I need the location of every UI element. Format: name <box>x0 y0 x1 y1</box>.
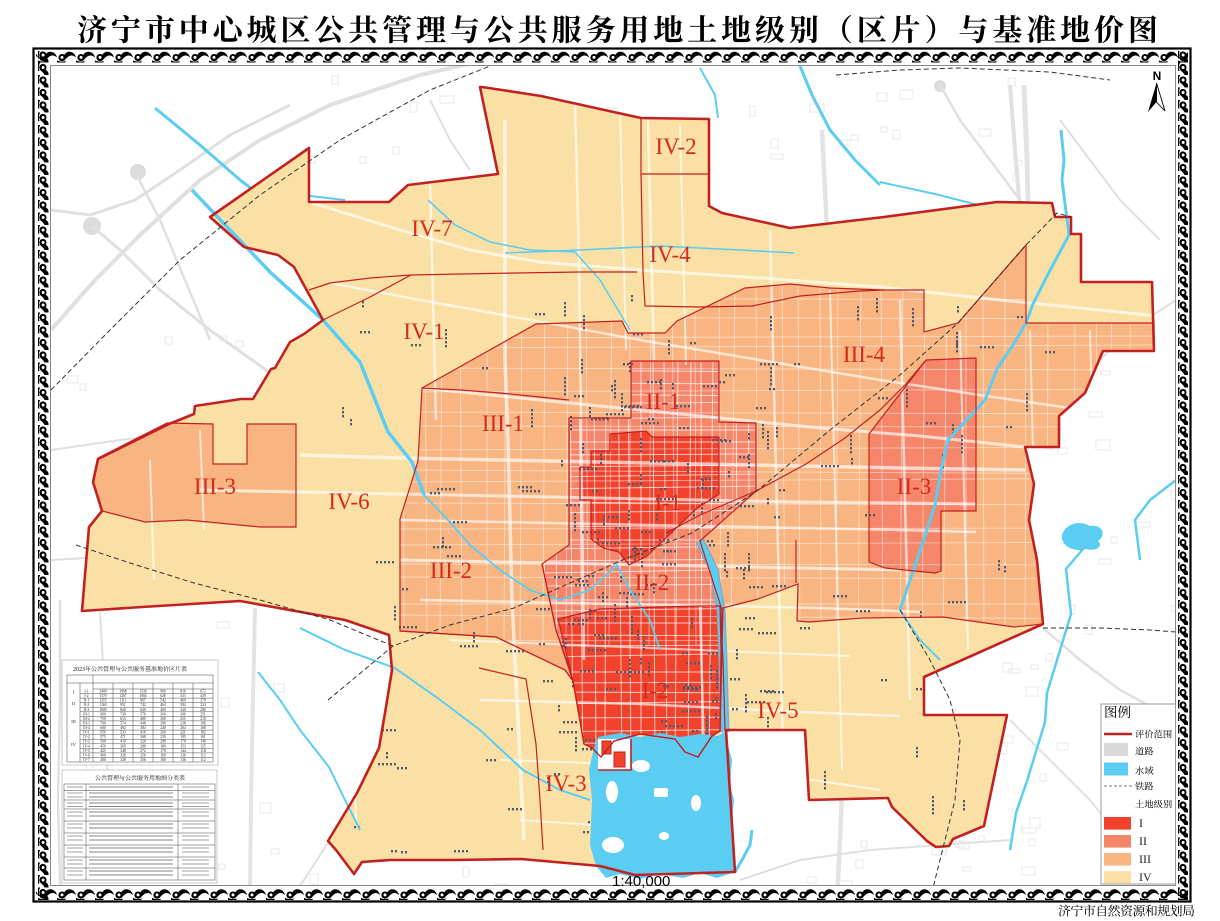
svg-text:328: 328 <box>120 758 126 762</box>
svg-text:820: 820 <box>120 708 126 712</box>
svg-text:161: 161 <box>200 735 206 739</box>
svg-text:400: 400 <box>160 708 166 712</box>
svg-text:340: 340 <box>180 708 186 712</box>
svg-text:251: 251 <box>200 712 206 716</box>
svg-text:300: 300 <box>160 717 166 721</box>
svg-text:324: 324 <box>200 703 206 707</box>
svg-text:615: 615 <box>120 717 126 721</box>
svg-text:464: 464 <box>160 703 166 707</box>
svg-text:1004: 1004 <box>139 694 146 698</box>
svg-text:394: 394 <box>180 703 186 707</box>
svg-text:672: 672 <box>200 690 206 694</box>
svg-text:700: 700 <box>100 722 106 726</box>
svg-text:144: 144 <box>180 749 186 753</box>
svg-text:IV: IV <box>1139 870 1152 884</box>
svg-text:112: 112 <box>200 758 205 762</box>
svg-text:256: 256 <box>140 753 146 757</box>
svg-text:153: 153 <box>180 744 186 748</box>
svg-text:125: 125 <box>200 744 206 748</box>
svg-text:1570: 1570 <box>99 694 106 698</box>
svg-text:416: 416 <box>140 731 146 735</box>
svg-text:140: 140 <box>200 740 206 744</box>
svg-text:1000: 1000 <box>99 708 106 712</box>
svg-text:379: 379 <box>200 699 206 703</box>
svg-text:N: N <box>1153 69 1162 83</box>
svg-text:439: 439 <box>200 694 206 698</box>
svg-text:240: 240 <box>160 726 166 730</box>
svg-text:272: 272 <box>140 749 146 753</box>
svg-text:1:40,000: 1:40,000 <box>612 873 670 890</box>
svg-text:816: 816 <box>180 690 186 694</box>
svg-text:2400: 2400 <box>99 690 106 694</box>
svg-text:1968: 1968 <box>119 690 126 694</box>
svg-text:1160: 1160 <box>99 703 106 707</box>
svg-text:160: 160 <box>160 753 166 757</box>
svg-text:196: 196 <box>200 722 206 726</box>
svg-text:168: 168 <box>200 726 206 730</box>
svg-text:160: 160 <box>160 758 166 762</box>
svg-text:238: 238 <box>180 722 186 726</box>
svg-text:136: 136 <box>180 758 186 762</box>
svg-text:576: 576 <box>140 712 146 716</box>
svg-text:384: 384 <box>140 726 146 730</box>
svg-text:IV-7: IV-7 <box>411 216 452 241</box>
svg-text:750: 750 <box>100 717 106 721</box>
svg-text:221: 221 <box>180 731 186 735</box>
svg-text:III-1: III-1 <box>482 411 524 436</box>
svg-text:II-2: II-2 <box>84 703 90 707</box>
svg-text:IV-3: IV-3 <box>545 771 586 796</box>
svg-text:182: 182 <box>200 731 206 735</box>
svg-text:650: 650 <box>100 731 106 735</box>
svg-text:533: 533 <box>180 694 186 698</box>
svg-text:960: 960 <box>160 690 166 694</box>
svg-text:IV-6: IV-6 <box>328 489 369 514</box>
svg-text:III-2: III-2 <box>83 717 90 721</box>
svg-text:170: 170 <box>180 740 186 744</box>
svg-text:III: III <box>1139 852 1151 866</box>
svg-text:118: 118 <box>200 749 205 753</box>
svg-text:II-3: II-3 <box>897 474 931 499</box>
svg-text:IV-2: IV-2 <box>83 735 90 739</box>
svg-text:320: 320 <box>140 740 146 744</box>
svg-text:IV-6: IV-6 <box>83 753 90 757</box>
svg-text:369: 369 <box>120 744 126 748</box>
svg-text:204: 204 <box>180 726 186 730</box>
svg-text:112: 112 <box>200 753 205 757</box>
svg-text:900: 900 <box>100 712 106 716</box>
svg-text:II: II <box>72 701 75 706</box>
svg-text:256: 256 <box>140 758 146 762</box>
svg-text:230: 230 <box>160 735 166 739</box>
svg-text:360: 360 <box>160 712 166 716</box>
svg-text:640: 640 <box>140 708 146 712</box>
svg-text:III-2: III-2 <box>430 558 472 583</box>
svg-text:I-2: I-2 <box>642 678 669 703</box>
svg-text:492: 492 <box>120 726 126 730</box>
svg-text:738: 738 <box>120 712 126 716</box>
svg-text:IV-1: IV-1 <box>83 731 90 735</box>
svg-text:IV: IV <box>71 742 76 747</box>
svg-text:III-4: III-4 <box>843 342 886 367</box>
svg-text:425: 425 <box>100 749 106 753</box>
svg-text:I: I <box>1139 816 1143 830</box>
svg-text:628: 628 <box>160 694 166 698</box>
svg-text:575: 575 <box>100 735 106 739</box>
svg-text:IV-2: IV-2 <box>655 134 696 159</box>
svg-text:170: 170 <box>160 749 166 753</box>
svg-text:288: 288 <box>140 744 146 748</box>
svg-text:742: 742 <box>140 703 146 707</box>
svg-text:180: 180 <box>160 744 166 748</box>
svg-text:IV-4: IV-4 <box>83 744 90 748</box>
svg-text:IV-1: IV-1 <box>403 319 444 344</box>
svg-text:450: 450 <box>100 744 106 748</box>
svg-text:368: 368 <box>140 735 146 739</box>
svg-text:IV-5: IV-5 <box>757 698 798 723</box>
svg-text:III: III <box>71 719 76 724</box>
svg-text:1536: 1536 <box>139 690 146 694</box>
svg-text:400: 400 <box>100 758 106 762</box>
svg-text:210: 210 <box>200 717 206 721</box>
svg-text:I-1: I-1 <box>655 490 682 515</box>
svg-text:542: 542 <box>160 699 166 703</box>
svg-text:280: 280 <box>160 722 166 726</box>
svg-text:280: 280 <box>200 708 206 712</box>
svg-text:IV-4: IV-4 <box>649 242 691 267</box>
svg-text:136: 136 <box>180 753 186 757</box>
svg-text:II-1: II-1 <box>646 389 680 414</box>
svg-text:I-2: I-2 <box>84 694 88 698</box>
svg-text:III-1: III-1 <box>83 712 90 716</box>
svg-text:IV-3: IV-3 <box>83 740 90 744</box>
svg-text:I-1: I-1 <box>84 690 88 694</box>
svg-text:200: 200 <box>160 740 166 744</box>
svg-text:260: 260 <box>160 731 166 735</box>
svg-text:306: 306 <box>180 712 186 716</box>
svg-text:1355: 1355 <box>99 699 106 703</box>
svg-text:II-1: II-1 <box>84 699 90 703</box>
svg-text:255: 255 <box>180 717 186 721</box>
svg-text:400: 400 <box>100 753 106 757</box>
svg-text:574: 574 <box>120 722 126 726</box>
svg-text:471: 471 <box>120 735 126 739</box>
svg-text:III-3: III-3 <box>83 722 90 726</box>
svg-text:500: 500 <box>100 740 106 744</box>
svg-text:328: 328 <box>120 753 126 757</box>
svg-text:951: 951 <box>120 703 126 707</box>
svg-text:II-3: II-3 <box>84 708 90 712</box>
svg-text:448: 448 <box>140 722 146 726</box>
svg-text:II-2: II-2 <box>635 570 669 595</box>
svg-text:195: 195 <box>180 735 186 739</box>
svg-text:410: 410 <box>120 740 126 744</box>
svg-text:III-4: III-4 <box>83 726 90 730</box>
svg-text:480: 480 <box>140 717 146 721</box>
svg-text:867: 867 <box>140 699 146 703</box>
svg-text:II: II <box>1139 834 1147 848</box>
svg-text:460: 460 <box>180 699 186 703</box>
svg-text:348: 348 <box>120 749 126 753</box>
svg-text:IV-5: IV-5 <box>83 749 90 753</box>
svg-text:2023: 2023 <box>73 667 85 673</box>
svg-text:600: 600 <box>100 726 106 730</box>
svg-text:1111: 1111 <box>120 699 127 703</box>
svg-text:IV-7: IV-7 <box>83 758 90 762</box>
svg-text:III-3: III-3 <box>194 474 236 499</box>
svg-text:533: 533 <box>120 731 126 735</box>
svg-text:1287: 1287 <box>119 694 126 698</box>
